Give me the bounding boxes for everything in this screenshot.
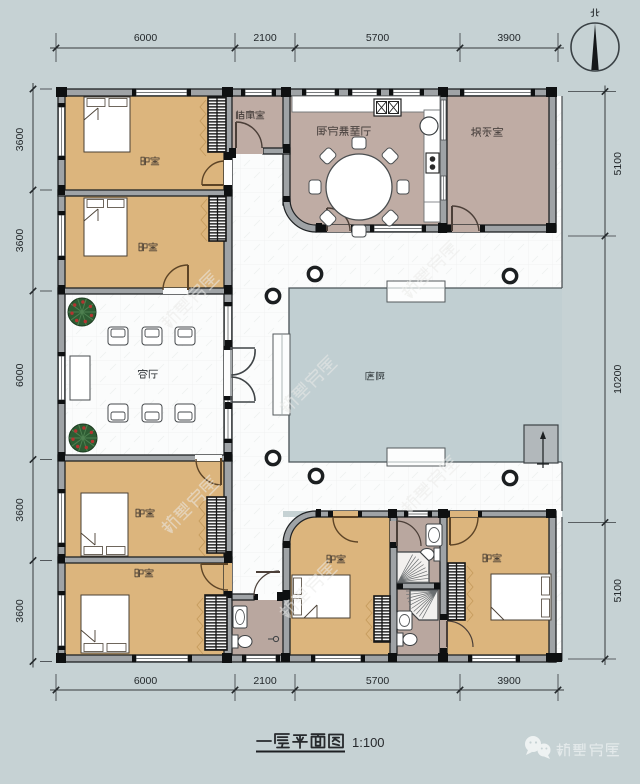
svg-text:5700: 5700 (366, 32, 390, 44)
svg-text:3600: 3600 (14, 498, 26, 522)
svg-text:5100: 5100 (612, 152, 624, 176)
svg-text:3600: 3600 (14, 599, 26, 623)
svg-text:3900: 3900 (497, 32, 521, 44)
svg-text:3600: 3600 (14, 128, 26, 152)
svg-text:10200: 10200 (612, 364, 624, 393)
svg-text:1:100: 1:100 (352, 735, 385, 750)
svg-text:3900: 3900 (497, 675, 521, 687)
svg-text:6000: 6000 (14, 363, 26, 387)
svg-text:2100: 2100 (253, 675, 277, 687)
svg-text:6000: 6000 (134, 32, 158, 44)
svg-text:6000: 6000 (134, 675, 158, 687)
svg-text:5700: 5700 (366, 675, 390, 687)
svg-text:2100: 2100 (253, 32, 277, 44)
svg-text:5100: 5100 (612, 579, 624, 603)
svg-text:3600: 3600 (14, 229, 26, 253)
